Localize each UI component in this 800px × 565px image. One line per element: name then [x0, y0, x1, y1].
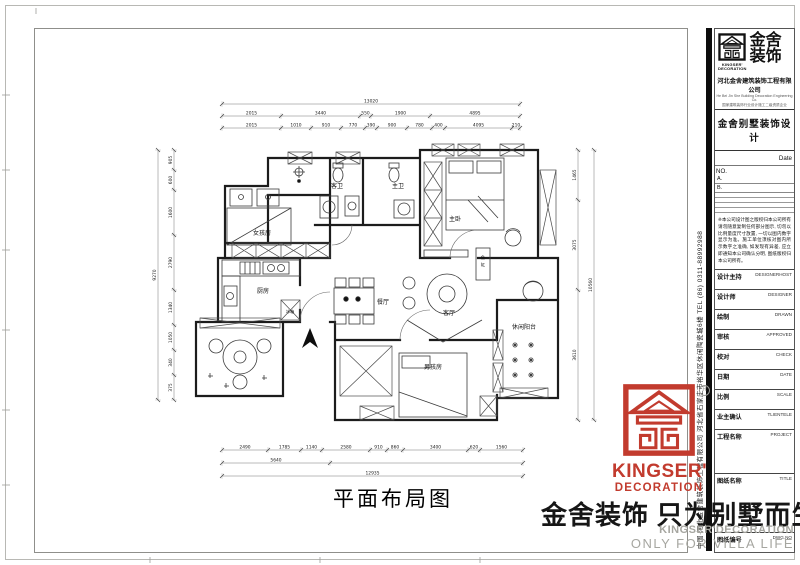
footer-brand-sub: DECORATION	[612, 482, 706, 494]
svg-text:620: 620	[470, 445, 479, 451]
room-label-master-bedroom: 主卧	[449, 215, 461, 223]
svg-text:1560: 1560	[496, 445, 507, 451]
svg-text:375: 375	[168, 383, 174, 392]
tb-row-approved: 审核 APPROVED	[715, 329, 794, 349]
svg-text:3610: 3610	[572, 349, 578, 360]
svg-text:3400: 3400	[430, 445, 441, 451]
date-label: Date	[715, 153, 794, 163]
svg-text:3075: 3075	[572, 239, 578, 250]
svg-text:1050: 1050	[168, 332, 174, 343]
svg-text:2015: 2015	[246, 123, 257, 129]
title-block-brand-en: KINGSER' DECORATION	[718, 63, 747, 72]
svg-text:3440: 3440	[315, 111, 326, 117]
north-arrow-icon	[302, 328, 318, 348]
svg-text:2790: 2790	[168, 257, 174, 268]
svg-text:780: 780	[415, 123, 424, 129]
tb-row-project: 工程名称 PROJECT	[715, 429, 794, 473]
footer-brand-name: KINGSER'	[612, 462, 706, 482]
slogan-en-line2: ONLY FOR VILLA LIFE	[631, 537, 794, 552]
room-label-master-bath: 主卫	[392, 182, 404, 190]
title-block-company-en: He Bei Jin She Building Decoration Engin…	[715, 94, 794, 103]
svg-text:400: 400	[434, 123, 443, 129]
svg-text:900: 900	[388, 123, 397, 129]
svg-text:860: 860	[391, 445, 400, 451]
svg-text:2015: 2015	[246, 111, 257, 117]
room-label-dining: 餐厅	[377, 298, 389, 306]
svg-text:910: 910	[322, 123, 331, 129]
svg-text:905: 905	[168, 156, 174, 165]
svg-text:390: 390	[367, 123, 376, 129]
room-label-fish-tank-1: 鱼	[481, 254, 485, 260]
title-block-company: 河北金舍建筑装饰工程有限公司	[715, 76, 794, 94]
svg-text:340: 340	[168, 358, 174, 367]
revision-a: A.	[715, 175, 794, 184]
kingser-logo-icon	[622, 383, 696, 457]
room-label-kitchen: 厨房	[257, 287, 269, 295]
drawing-sheet: 女孩房 客卫 主卫 主卧 厨房 冰箱 餐厅 客厅 鱼 缸 休闲阳台 男孩房 13…	[0, 0, 800, 565]
title-block: KINGSER' DECORATION 金舍 装饰 河北金舍建筑装饰工程有限公司…	[714, 28, 795, 553]
title-block-logo-row: KINGSER' DECORATION 金舍 装饰	[715, 29, 794, 73]
kingser-logo-small-icon	[718, 33, 746, 61]
svg-text:4895: 4895	[469, 111, 480, 117]
slogan-en: KINGSER'DECORATION ONLY FOR VILLA LIFE	[631, 524, 794, 552]
svg-text:1465: 1465	[572, 169, 578, 180]
tb-row-designer: 设计师 DESIGNER	[715, 289, 794, 309]
svg-text:210: 210	[512, 123, 521, 129]
registered-mark-icon: R	[699, 385, 710, 396]
svg-text:5640: 5640	[270, 458, 281, 464]
svg-text:2580: 2580	[340, 445, 351, 451]
svg-text:10560: 10560	[588, 278, 594, 292]
room-label-living: 客厅	[443, 309, 455, 317]
edge-ticks	[2, 8, 480, 563]
slogan-en-line1: KINGSER'DECORATION	[631, 524, 794, 537]
svg-text:1785: 1785	[279, 445, 290, 451]
title-block-disclaimer: ※本公司设计图之版权归本公司所有 请勿随意复制任何部分图示, 切勿以比例量度尺寸…	[715, 213, 794, 269]
svg-text:12935: 12935	[366, 471, 380, 477]
title-block-product-line: 金舍别墅装饰设计	[715, 112, 794, 148]
room-label-boy-room: 男孩房	[424, 363, 442, 371]
svg-text:1600: 1600	[168, 207, 174, 218]
svg-text:550: 550	[361, 111, 370, 117]
footer-brand-logo: R KINGSER' DECORATION	[612, 383, 706, 494]
tb-row-drawn: 绘制 DRAWN	[715, 309, 794, 329]
svg-text:1900: 1900	[395, 111, 406, 117]
tb-row-check: 校对 CHECK	[715, 349, 794, 369]
tb-row-date: 日期 DATE	[715, 369, 794, 389]
tb-row-designerhost: 设计主持 DESIGNERHOST	[715, 269, 794, 289]
title-block-company-sub: 国家建筑装饰行业设计施工二级资质企业	[715, 103, 794, 107]
tb-row-clientele: 业主确认 TLIENTELE	[715, 409, 794, 429]
svg-text:9270: 9270	[152, 269, 158, 280]
room-label-fridge: 冰箱	[286, 308, 294, 315]
plant-icon	[512, 342, 534, 378]
room-label-fish-tank-2: 缸	[481, 261, 486, 267]
revision-b: B.	[715, 184, 794, 193]
svg-text:1340: 1340	[168, 302, 174, 313]
svg-text:13020: 13020	[364, 99, 378, 105]
svg-text:2490: 2490	[239, 445, 250, 451]
svg-text:910: 910	[374, 445, 383, 451]
room-labels: 女孩房 客卫 主卫 主卧 厨房 冰箱 餐厅 客厅 鱼 缸 休闲阳台 男孩房	[253, 182, 536, 371]
no-label: NO.	[715, 167, 794, 175]
svg-text:1010: 1010	[290, 123, 301, 129]
title-block-brand-cn: 金舍 装饰	[750, 33, 782, 66]
room-label-balcony: 休闲阳台	[512, 323, 536, 331]
svg-text:600: 600	[168, 176, 174, 185]
svg-text:770: 770	[349, 123, 358, 129]
room-label-guest-bath: 客卫	[331, 182, 343, 190]
svg-text:1140: 1140	[306, 445, 317, 451]
room-label-girl-room: 女孩房	[253, 229, 271, 237]
svg-text:4095: 4095	[473, 123, 484, 129]
tb-row-scale: 比例 SCALE	[715, 389, 794, 409]
